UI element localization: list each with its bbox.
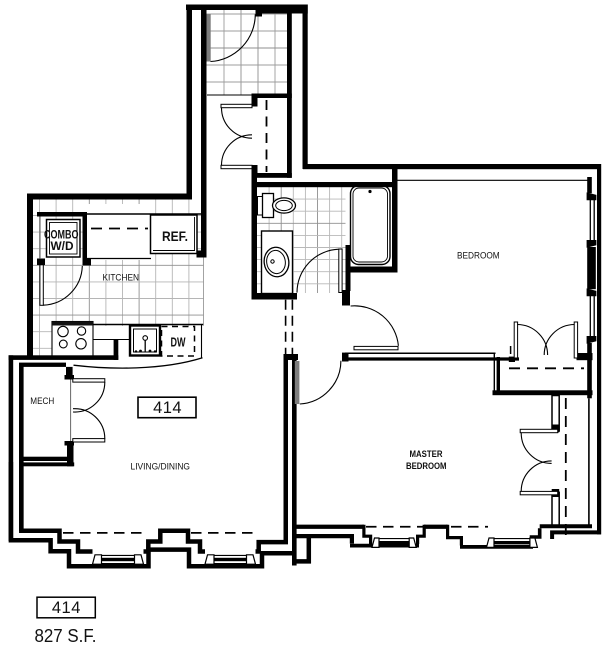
svg-text:414: 414	[153, 399, 182, 417]
svg-text:MECH: MECH	[30, 396, 54, 406]
svg-text:BEDROOM: BEDROOM	[406, 461, 447, 472]
svg-text:DW: DW	[171, 335, 186, 350]
svg-text:REF.: REF.	[162, 228, 188, 244]
svg-text:LIVING/DINING: LIVING/DINING	[131, 462, 191, 473]
svg-text:KITCHEN: KITCHEN	[103, 273, 140, 284]
svg-text:MASTER: MASTER	[410, 449, 443, 460]
svg-text:827 S.F.: 827 S.F.	[35, 626, 97, 646]
svg-text:BEDROOM: BEDROOM	[457, 250, 500, 261]
svg-text:414: 414	[52, 599, 81, 617]
svg-text:W/D: W/D	[51, 239, 74, 253]
